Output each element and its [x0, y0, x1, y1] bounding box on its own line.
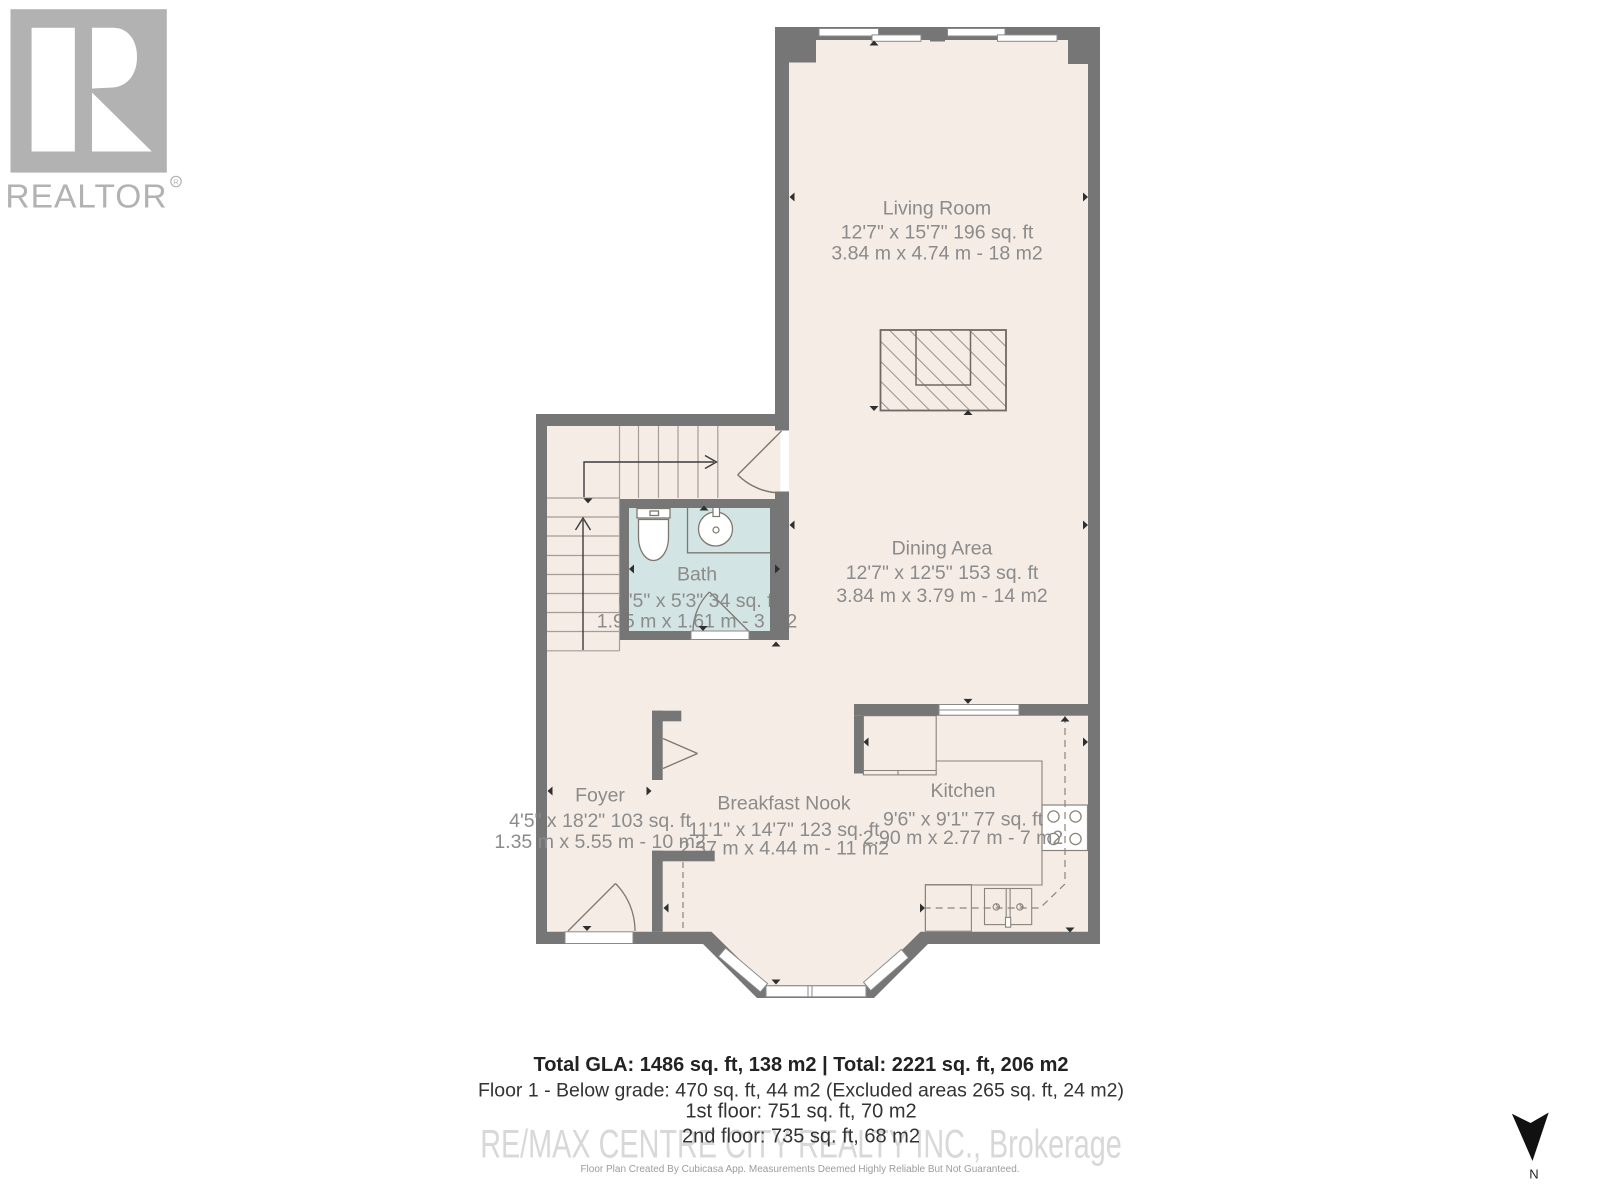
svg-text:12'7" x 12'5" 153 sq. ft: 12'7" x 12'5" 153 sq. ft — [846, 562, 1039, 584]
svg-text:R: R — [173, 177, 179, 186]
svg-text:2nd floor: 735 sq. ft, 68 m2: 2nd floor: 735 sq. ft, 68 m2 — [682, 1126, 920, 1148]
svg-text:Floor 1 - Below grade: 470 sq.: Floor 1 - Below grade: 470 sq. ft, 44 m2… — [478, 1080, 1124, 1102]
svg-text:Living Room: Living Room — [883, 198, 991, 220]
svg-text:3.84 m x 3.79 m - 14 m2: 3.84 m x 3.79 m - 14 m2 — [836, 585, 1047, 607]
svg-text:Dining Area: Dining Area — [892, 538, 993, 560]
svg-text:Total GLA: 1486 sq. ft, 138 m2: Total GLA: 1486 sq. ft, 138 m2 | Total: … — [533, 1054, 1068, 1076]
svg-text:REALTOR: REALTOR — [5, 179, 167, 216]
svg-text:1st floor: 751 sq. ft, 70 m2: 1st floor: 751 sq. ft, 70 m2 — [685, 1101, 916, 1123]
svg-text:Kitchen: Kitchen — [930, 780, 995, 802]
svg-text:6'5" x 5'3" 34 sq. ft: 6'5" x 5'3" 34 sq. ft — [618, 590, 779, 612]
svg-text:Floor Plan Created By Cubicasa: Floor Plan Created By Cubicasa App. Meas… — [580, 1164, 1019, 1175]
svg-text:Foyer: Foyer — [575, 785, 625, 807]
svg-text:3.84 m x 4.74 m - 18 m2: 3.84 m x 4.74 m - 18 m2 — [831, 243, 1042, 265]
svg-text:12'7" x 15'7" 196 sq. ft: 12'7" x 15'7" 196 sq. ft — [841, 222, 1034, 244]
svg-text:Bath: Bath — [677, 564, 717, 586]
svg-text:Breakfast Nook: Breakfast Nook — [717, 793, 851, 815]
svg-text:N: N — [1529, 1167, 1538, 1182]
svg-text:2.90 m x 2.77 m - 7 m2: 2.90 m x 2.77 m - 7 m2 — [863, 827, 1064, 849]
svg-text:1.35 m x 5.55 m - 10 m2: 1.35 m x 5.55 m - 10 m2 — [494, 831, 705, 853]
svg-text:4'5" x 18'2" 103 sq. ft: 4'5" x 18'2" 103 sq. ft — [509, 810, 691, 832]
